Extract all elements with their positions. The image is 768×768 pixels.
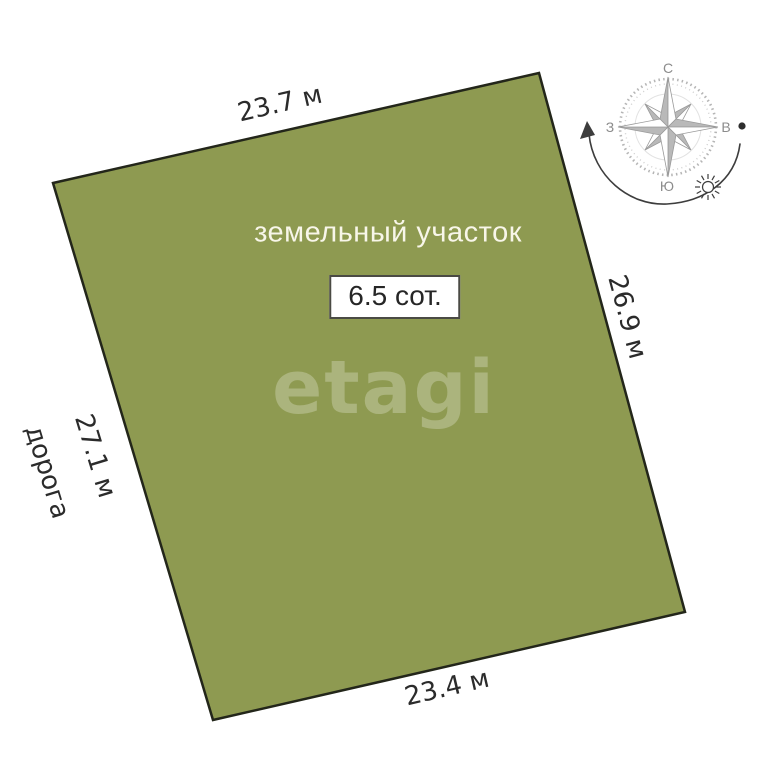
land-plot-diagram: etagi земельный участок 6.5 сот. 23.7 м … — [0, 0, 768, 768]
plot-title: земельный участок — [254, 217, 522, 250]
compass-south-label: Ю — [660, 178, 674, 194]
compass-east-label: В — [721, 119, 730, 135]
watermark-etagi: etagi — [272, 345, 496, 431]
compass-star — [618, 77, 718, 177]
area-badge: 6.5 сот. — [329, 275, 460, 319]
compass-north-label: С — [663, 60, 673, 76]
compass-rose-icon: С В Ю З — [575, 40, 768, 230]
east-dot — [738, 122, 745, 129]
sun-path-arrowhead — [580, 121, 595, 139]
compass-west-label: З — [606, 119, 614, 135]
